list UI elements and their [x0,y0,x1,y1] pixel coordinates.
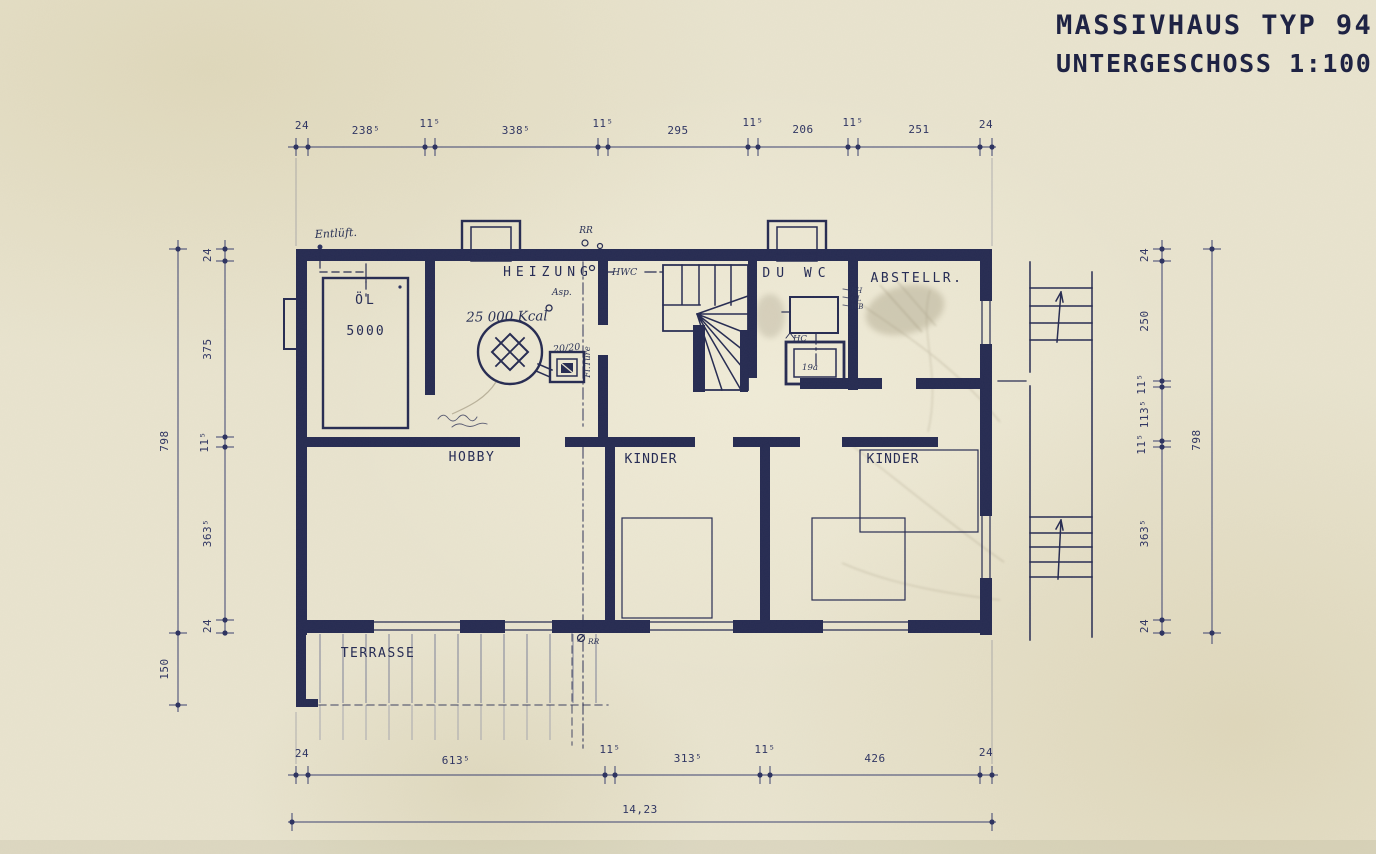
floor-plan-drawing: 24 238⁵ 11⁵ 338⁵ 11⁵ 295 11⁵ 206 11⁵ 251… [0,0,1376,854]
blueprint-scan: 24 238⁵ 11⁵ 338⁵ 11⁵ 295 11⁵ 206 11⁵ 251… [0,0,1376,854]
paper-grain-texture [0,0,1376,854]
